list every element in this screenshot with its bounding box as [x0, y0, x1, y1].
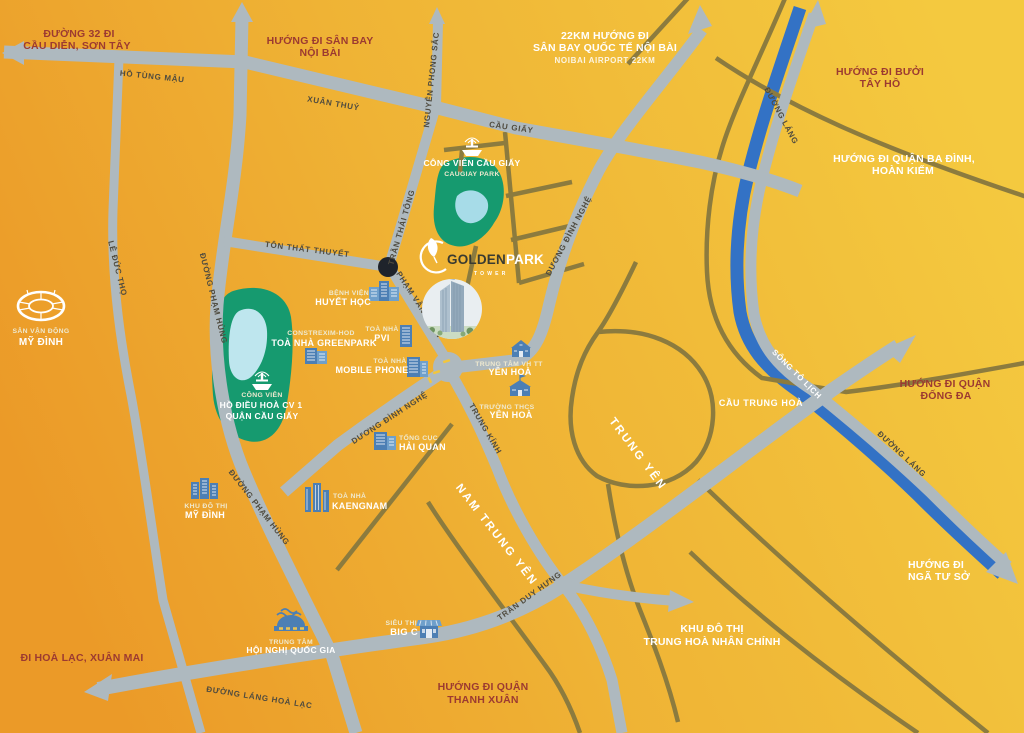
label-kdt-mydinh: KHU ĐÔ THỊ [184, 501, 227, 510]
svg-text:QUẬN CẦU GIẤY: QUẬN CẦU GIẤY [226, 410, 299, 421]
direction-noibai: HƯỚNG ĐI SÂN BAY [267, 34, 374, 47]
golden-park-junction [433, 352, 463, 382]
direction-thanhxuan: HƯỚNG ĐI QUẬN [438, 680, 529, 693]
direction-hoalac-xuanmai: ĐI HOÀ LẠC, XUÂN MAI [21, 651, 144, 664]
svg-text:CẦU DIỄN, SƠN TÂY: CẦU DIỄN, SƠN TÂY [23, 39, 130, 52]
label-mydinh-stadium: SÂN VẬN ĐỘNG [12, 326, 69, 335]
svg-text:TRUNG HOÀ NHÂN CHÍNH: TRUNG HOÀ NHÂN CHÍNH [644, 635, 781, 648]
svg-text:HỘI NGHỊ QUỐC GIA: HỘI NGHỊ QUỐC GIA [246, 644, 335, 655]
direction-dongda: HƯỚNG ĐI QUẬN [900, 377, 991, 390]
location-map: ĐƯỜNG 32 ĐI CẦU DIỄN, SƠN TÂY HƯỚNG ĐI S… [0, 0, 1024, 733]
svg-text:NỘI BÀI: NỘI BÀI [299, 46, 340, 59]
area-trunghoa-nhanchinh: KHU ĐÔ THỊ [680, 622, 743, 635]
svg-text:NOIBAI AIRPORT 22KM: NOIBAI AIRPORT 22KM [555, 56, 656, 65]
svg-text:TÂY HỒ: TÂY HỒ [860, 77, 901, 90]
svg-text:TOÀ NHÀ GREENPARK: TOÀ NHÀ GREENPARK [271, 338, 376, 348]
label-greenpark: CONSTREXIM-HOD [287, 330, 355, 337]
direction-ngatuso: HƯỚNG ĐI [908, 558, 964, 571]
svg-text:ĐỐNG ĐA: ĐỐNG ĐA [921, 388, 972, 402]
label-hai-quan: TỔNG CỤC [399, 433, 438, 442]
logo-tagline: TOWER [474, 271, 509, 277]
direction-noibai-22km: 22KM HƯỚNG ĐI [561, 29, 649, 42]
svg-text:HOÀN KIẾM: HOÀN KIẾM [872, 164, 934, 177]
svg-text:BIG C: BIG C [390, 627, 418, 638]
svg-text:CAUGIAY PARK: CAUGIAY PARK [444, 171, 499, 178]
label-big-c: SIÊU THỊ [385, 618, 417, 627]
label-kaengnam: TOÀ NHÀ [333, 491, 366, 500]
label-cau-trung-hoa: CẦU TRUNG HOÀ [719, 398, 803, 408]
svg-text:HUYẾT HỌC: HUYẾT HỌC [315, 297, 371, 307]
svg-text:HỒ ĐIỀU HOÀ CV 1: HỒ ĐIỀU HOÀ CV 1 [220, 399, 303, 410]
svg-text:MỸ ĐÌNH: MỸ ĐÌNH [19, 335, 63, 348]
label-cv1-park: CÔNG VIÊN [241, 390, 282, 399]
label-mobile-phone: TOÀ NHÀ [373, 356, 406, 365]
svg-text:MOBILE PHONE: MOBILE PHONE [335, 365, 408, 375]
svg-text:NGÃ TƯ SỞ: NGÃ TƯ SỞ [908, 570, 970, 583]
direction-badinh-hoankiem: HƯỚNG ĐI QUẬN BA ĐÌNH, [833, 152, 975, 165]
logo-wordmark: GOLDENPARK [447, 252, 544, 267]
direction-buoi-tayho: HƯỚNG ĐI BƯỞI [836, 65, 924, 78]
svg-text:HẢI QUAN: HẢI QUAN [399, 441, 446, 452]
label-huyet-hoc: BỆNH VIỆN [329, 288, 369, 297]
svg-text:MỸ ĐÌNH: MỸ ĐÌNH [185, 510, 225, 520]
svg-text:PVI: PVI [374, 333, 389, 343]
map-canvas: ĐƯỜNG 32 ĐI CẦU DIỄN, SƠN TÂY HƯỚNG ĐI S… [0, 0, 1024, 733]
direction-route32: ĐƯỜNG 32 ĐI [43, 27, 114, 40]
svg-text:KAENGNAM: KAENGNAM [332, 501, 387, 511]
svg-text:YÊN HOÀ: YÊN HOÀ [488, 366, 531, 377]
label-caugiay-park: CÔNG VIÊN CẦU GIẤY [423, 157, 520, 168]
svg-text:YÊN HOÀ: YÊN HOÀ [489, 409, 532, 420]
svg-text:THANH XUÂN: THANH XUÂN [447, 693, 518, 706]
pvi-building-icon [400, 325, 412, 347]
svg-text:SÂN BAY QUỐC TẾ NỘI BÀI: SÂN BAY QUỐC TẾ NỘI BÀI [533, 40, 677, 54]
label-pvi: TOÀ NHÀ [365, 324, 398, 333]
